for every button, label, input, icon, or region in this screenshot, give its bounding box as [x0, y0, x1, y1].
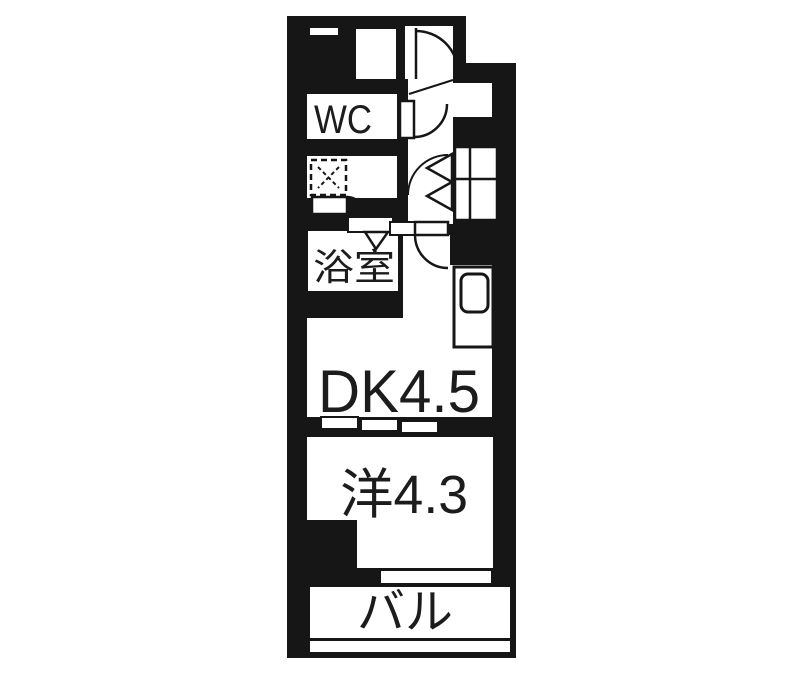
washroom-door-leaf	[312, 197, 347, 214]
shoe-cabinet-body	[455, 147, 497, 220]
shoe-cabinet	[455, 147, 497, 220]
dining-kitchen-label: DK4.5	[318, 358, 480, 425]
bathroom-label: 浴室	[313, 247, 395, 288]
balcony-railing-strip	[310, 641, 510, 652]
kitchen-sink-icon	[461, 274, 488, 312]
kitchen-door-leaf	[415, 222, 448, 235]
western-room-label: 洋4.3	[340, 465, 468, 525]
bathroom-threshold	[348, 217, 393, 232]
balcony-window	[380, 570, 492, 584]
wc-label: WC	[314, 98, 372, 142]
floor-plan-drawing: WC 浴室 DK4.5 洋4.3 バル	[0, 0, 800, 694]
kitchen-counter	[454, 267, 493, 347]
hall-closet	[356, 29, 396, 79]
floor-plan-page: WC 浴室 DK4.5 洋4.3 バル	[0, 0, 800, 694]
washroom	[307, 156, 397, 198]
balcony-label: バル	[357, 586, 453, 639]
dk-door-area	[403, 235, 450, 268]
kitchen-door-threshold	[390, 222, 415, 235]
western-room-lower-floor	[357, 520, 493, 568]
entrance-step	[453, 83, 492, 117]
wall-vent-mark	[310, 28, 338, 35]
wc-door-leaf	[400, 101, 414, 138]
